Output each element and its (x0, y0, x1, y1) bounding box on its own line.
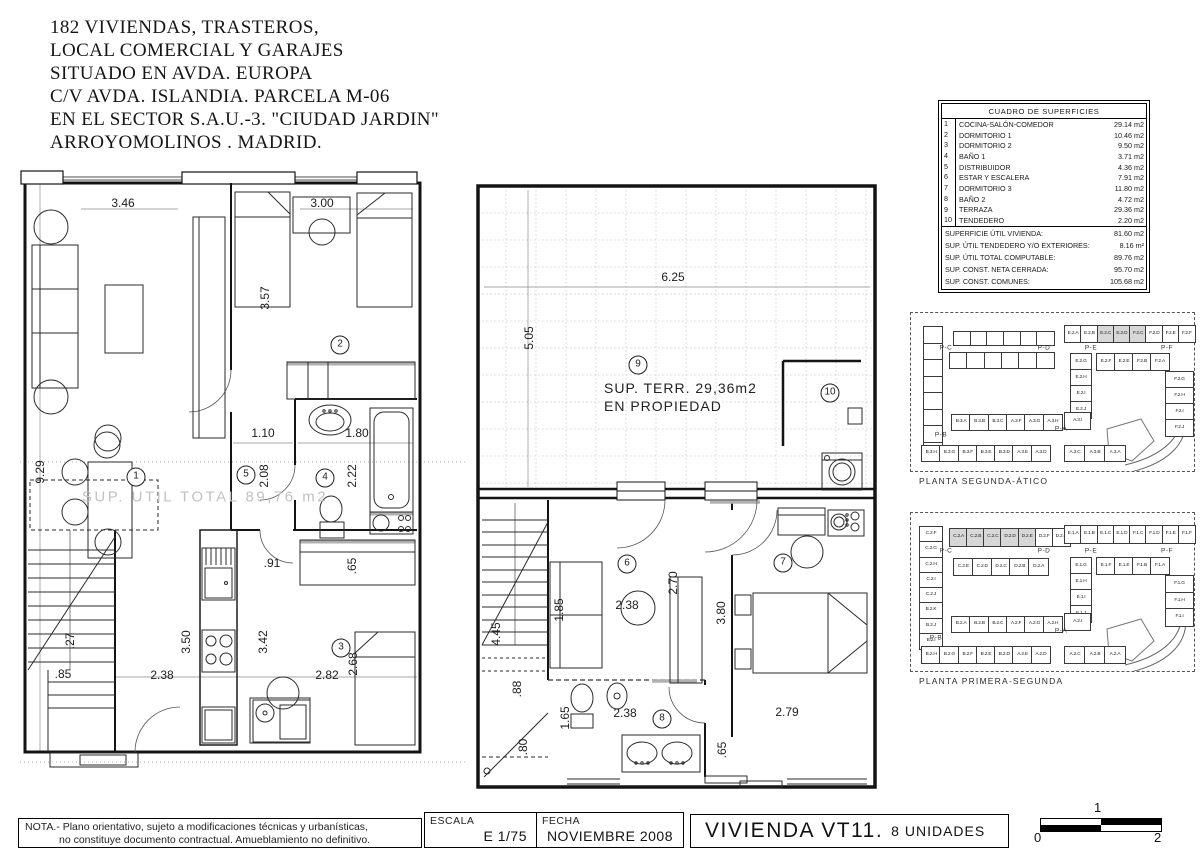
bath-sink (309, 405, 351, 435)
dim-lines (484, 190, 870, 487)
surface-row: 4BAÑO 13.71 m2 (942, 151, 1146, 162)
project-title-block: 182 VIVIENDAS, TRASTEROS, LOCAL COMERCIA… (50, 16, 520, 154)
scale-tick-0: 0 (1034, 830, 1041, 845)
keyplan-unit-cell: A.3.B (1084, 445, 1106, 462)
keyplan-unit-cell: A.2.B (1084, 646, 1106, 664)
keyplan-unit-cell: F.2.A (1150, 353, 1170, 371)
stove (202, 630, 235, 672)
keyplan-unit-cell: A.3.F (1006, 414, 1026, 431)
nightstand (293, 197, 350, 245)
walls-exterior (478, 186, 875, 787)
keyplan-unit-cell: A.2.G (1024, 616, 1044, 633)
keyplan-unit-cell (1036, 352, 1055, 369)
keyplan-unit-cell: A.2.I (1064, 613, 1091, 631)
surface-summary-row: SUP. ÚTIL TOTAL COMPUTABLE:89.76 m2 (942, 252, 1146, 264)
keyplan-unit-cell: B.2.H (921, 646, 941, 664)
keyplan-planta-segunda-atico: E.2.AE.2.BE.2.CE.2.DF.2.CF.2.DF.2.EF.2.F… (910, 312, 1195, 472)
portal-label: P-D (1038, 548, 1051, 555)
scale-tick-2: 2 (1154, 830, 1161, 845)
kitchen-counter (250, 698, 310, 743)
sofa (32, 245, 78, 388)
toilet-bath2 (571, 684, 593, 728)
portal-label: P-E (1085, 548, 1097, 555)
keyplan-unit-cell: F.2.B (1132, 353, 1152, 371)
title-line: EN EL SECTOR S.A.U.-3. "CIUDAD JARDIN" (50, 108, 520, 131)
keyplan-unit-cell: B.2.A (951, 616, 971, 633)
wardrobe-dorm2 (300, 540, 415, 585)
title-line: C/V AVDA. ISLANDIA. PARCELA M-06 (50, 85, 520, 108)
keyplan-unit-cell: B.2.E (976, 646, 996, 664)
escala-box: ESCALA E 1/75 (424, 812, 538, 848)
scale-tick-1: 1 (1094, 800, 1101, 815)
surface-summary-row: SUP. CONST. COMUNES:105.68 m2 (942, 276, 1146, 288)
keyplan-unit-cell: A.2.C (1064, 646, 1086, 664)
surface-summary-row: SUP. CONST. NETA CERRADA:95.70 m2 (942, 264, 1146, 276)
surface-table-title: CUADRO DE SUPERFICIES (942, 104, 1146, 119)
floor-plan-lower-level (18, 165, 470, 797)
keyplan-unit-cell: A.3.A (1104, 445, 1126, 462)
entry-porch (50, 753, 138, 767)
walls-interior (115, 183, 417, 752)
nota-line-2: no constituye documento contractual. Amu… (25, 834, 415, 847)
bed-dorm2 (355, 632, 415, 745)
keyplan-caption: PLANTA SEGUNDA-ÁTICO (919, 476, 1048, 486)
title-line: 182 VIVIENDAS, TRASTEROS, (50, 16, 520, 39)
surface-rows: 1COCINA-SALÓN-COMEDOR29.14 m22DORMITORIO… (942, 119, 1146, 226)
keyplan-unit-cell: F.1.B (1132, 557, 1152, 575)
coffee-table (105, 285, 143, 353)
graphic-scale: 1 0 2 (1030, 798, 1170, 844)
keyplan-unit-cell: B.2.G (939, 646, 959, 664)
title-line: LOCAL COMERCIAL Y GARAJES (50, 39, 520, 62)
grey-accent-walls (652, 502, 760, 681)
surface-row: 3DORMITORIO 29.50 m2 (942, 140, 1146, 151)
fecha-box: FECHA NOVIEMBRE 2008 (536, 812, 684, 848)
nota-box: NOTA.- Plano orientativo, sujeto a modif… (18, 818, 422, 848)
keyplan-planta-primera-segunda: C.2.FC.2.GC.2.HC.2.IC.2.JB.2.KB.2.JB.2.I… (910, 512, 1195, 672)
surface-summary-row: SUPERFICIE ÚTIL VIVIENDA:81.60 m2 (942, 228, 1146, 240)
cabinet (193, 217, 225, 438)
title-line: ARROYOMOLINOS . MADRID. (50, 131, 520, 154)
drawing-sheet: 182 VIVIENDAS, TRASTEROS, LOCAL COMERCIA… (0, 0, 1200, 850)
keyplan-unit-cell: C.2.D (972, 558, 993, 576)
bathtub (370, 408, 413, 512)
keyplan-unit-cell: B.2.C (988, 616, 1008, 633)
chair-dorm3 (791, 536, 823, 568)
hob-unit (828, 510, 864, 536)
vivienda-title: VIVIENDA VT11. (705, 819, 883, 843)
plant-icons (34, 210, 68, 414)
stairs-icon (482, 503, 548, 777)
walls-exterior (25, 183, 420, 752)
keyplan-unit-cell: E.2.F (1096, 353, 1116, 371)
shelf-unit (670, 577, 702, 683)
surface-table-inner: CUADRO DE SUPERFICIES 1COCINA-SALÓN-COME… (941, 103, 1147, 290)
keyplan-unit-cell: F.1.I (1165, 608, 1194, 627)
keyplan-unit-cell: B.3.F (958, 445, 978, 462)
keyplan-unit-cell: C.2.E (953, 558, 974, 576)
keyplan-unit-cell: A.3.C (1064, 445, 1086, 462)
surface-row: 1COCINA-SALÓN-COMEDOR29.14 m2 (942, 119, 1146, 130)
surface-row: 6ESTAR Y ESCALERA7.91 m2 (942, 172, 1146, 183)
surface-table: CUADRO DE SUPERFICIES 1COCINA-SALÓN-COME… (938, 100, 1150, 293)
keyplan-unit-cell: A.3.G (1024, 414, 1044, 431)
keyplan-unit-cell: B.2.F (958, 646, 978, 664)
keyplan-unit-cell: A.3.E (1012, 445, 1032, 462)
portal-label: P-B (935, 432, 947, 439)
keyplan-unit-cell: E.2.E (1114, 353, 1134, 371)
terrace-tile-grid (482, 190, 872, 487)
escala-value: E 1/75 (484, 828, 527, 844)
nota-line-1: NOTA.- Plano orientativo, sujeto a modif… (25, 821, 415, 834)
wardrobe-dorm3 (778, 508, 825, 535)
surface-row: 7DORMITORIO 311.80 m2 (942, 183, 1146, 194)
dim-lines (40, 183, 417, 752)
grey-accent-walls (287, 364, 415, 542)
armchair (95, 425, 121, 451)
scale-seg (1041, 825, 1101, 831)
portal-label: P-F (1161, 548, 1173, 555)
bed-single-1 (235, 192, 290, 307)
floor-plan-upper-level (470, 165, 910, 797)
terrace-interior-wall (478, 489, 875, 498)
toilet (320, 496, 344, 538)
dining-table (62, 432, 132, 558)
keyplan-unit-cell: A.2.E (1012, 646, 1032, 664)
double-sink-counter (622, 735, 700, 772)
keyplan-unit-cell: B.2.B (969, 616, 989, 633)
keyplan-unit-cell: B.2.D (994, 646, 1014, 664)
vivienda-units: 8 UNIDADES (891, 823, 985, 839)
surface-summary-row: SUP. ÚTIL TENDEDERO Y/O EXTERIORES:8.16 … (942, 240, 1146, 252)
closet-dorm1 (287, 362, 415, 399)
keyplan-unit-cell: A.2.F (1006, 616, 1026, 633)
double-bed (753, 593, 867, 673)
bidet (607, 683, 627, 709)
portal-label: P-D (1038, 345, 1051, 352)
keyplan-unit-cell: D.2.B (1009, 558, 1030, 576)
portal-label: P-B (930, 635, 942, 642)
portal-label: P-C (940, 345, 953, 352)
keyplan-unit-cell: A.3.I (1064, 412, 1091, 430)
keyplan-unit-cell: B.3.H (921, 445, 941, 462)
stairs-icon (28, 480, 158, 752)
surface-summary: SUPERFICIE ÚTIL VIVIENDA:81.60 m2SUP. ÚT… (942, 226, 1146, 289)
bed-single-2 (357, 193, 412, 307)
portal-label: P-F (1161, 345, 1173, 352)
keyplan-unit-cell: D.2.A (1028, 558, 1049, 576)
keyplan-unit-cell: E.1.F (1096, 557, 1116, 575)
keyplan-unit-cell: B.3.C (988, 414, 1008, 431)
portal-label: P-A (1055, 426, 1067, 433)
keyplan-unit-cell: B.3.B (969, 414, 989, 431)
keyplan-unit-cell: B.3.E (976, 445, 996, 462)
scale-bar (1040, 818, 1162, 832)
keyplan-unit-cell: B.3.G (939, 445, 959, 462)
fridge (202, 548, 235, 600)
keyplan-unit-cell: D.2.C (991, 558, 1012, 576)
tendedero-wall (783, 361, 861, 446)
escala-label: ESCALA (430, 815, 474, 827)
surface-row: 9TERRAZA29.36 m2 (942, 205, 1146, 216)
keyplan-unit-cell: F.1.A (1150, 557, 1170, 575)
nightstands (735, 595, 751, 669)
surface-row: 2DORMITORIO 110.46 m2 (942, 130, 1146, 141)
round-table (621, 591, 655, 625)
portal-label: P-E (1085, 345, 1097, 352)
kitchen-cabinet (202, 707, 235, 743)
keyplan-unit-cell: F.2.J (1165, 419, 1194, 437)
tendedero-box (848, 408, 862, 424)
washing-machine (822, 453, 862, 490)
keyplan-unit-cell: F.2.F (1178, 325, 1196, 343)
fecha-value: NOVIEMBRE 2008 (547, 828, 673, 844)
keyplan-unit-cell: E.1.E (1114, 557, 1134, 575)
keyplan-unit-cell: F.1.F (1178, 525, 1196, 544)
sofa-room6 (550, 562, 602, 668)
scale-seg (1101, 825, 1161, 831)
keyplan-unit-cell: B.3.D (994, 445, 1014, 462)
surface-row: 5DISTRIBUIDOR4.36 m2 (942, 162, 1146, 173)
keyplan-caption: PLANTA PRIMERA-SEGUNDA (919, 676, 1063, 686)
keyplan-unit-cell: A.2.A (1104, 646, 1126, 664)
door-arcs (135, 370, 295, 752)
keyplan-unit-cell: B.3.A (951, 414, 971, 431)
vivienda-box: VIVIENDA VT11. 8 UNIDADES (690, 814, 1009, 848)
keyplan-unit-cell: A.3.D (1031, 445, 1051, 462)
title-line: SITUADO EN AVDA. EUROPA (50, 62, 520, 85)
surface-row: 8BAÑO 24.72 m2 (942, 194, 1146, 205)
desk-chair (253, 677, 310, 742)
surface-row: 10TENDEDERO2.20 m2 (942, 215, 1146, 226)
portal-label: P-A (1055, 628, 1067, 635)
fecha-label: FECHA (542, 815, 580, 827)
keyplan-unit-cell: A.2.D (1031, 646, 1051, 664)
portal-label: P-C (940, 548, 953, 555)
